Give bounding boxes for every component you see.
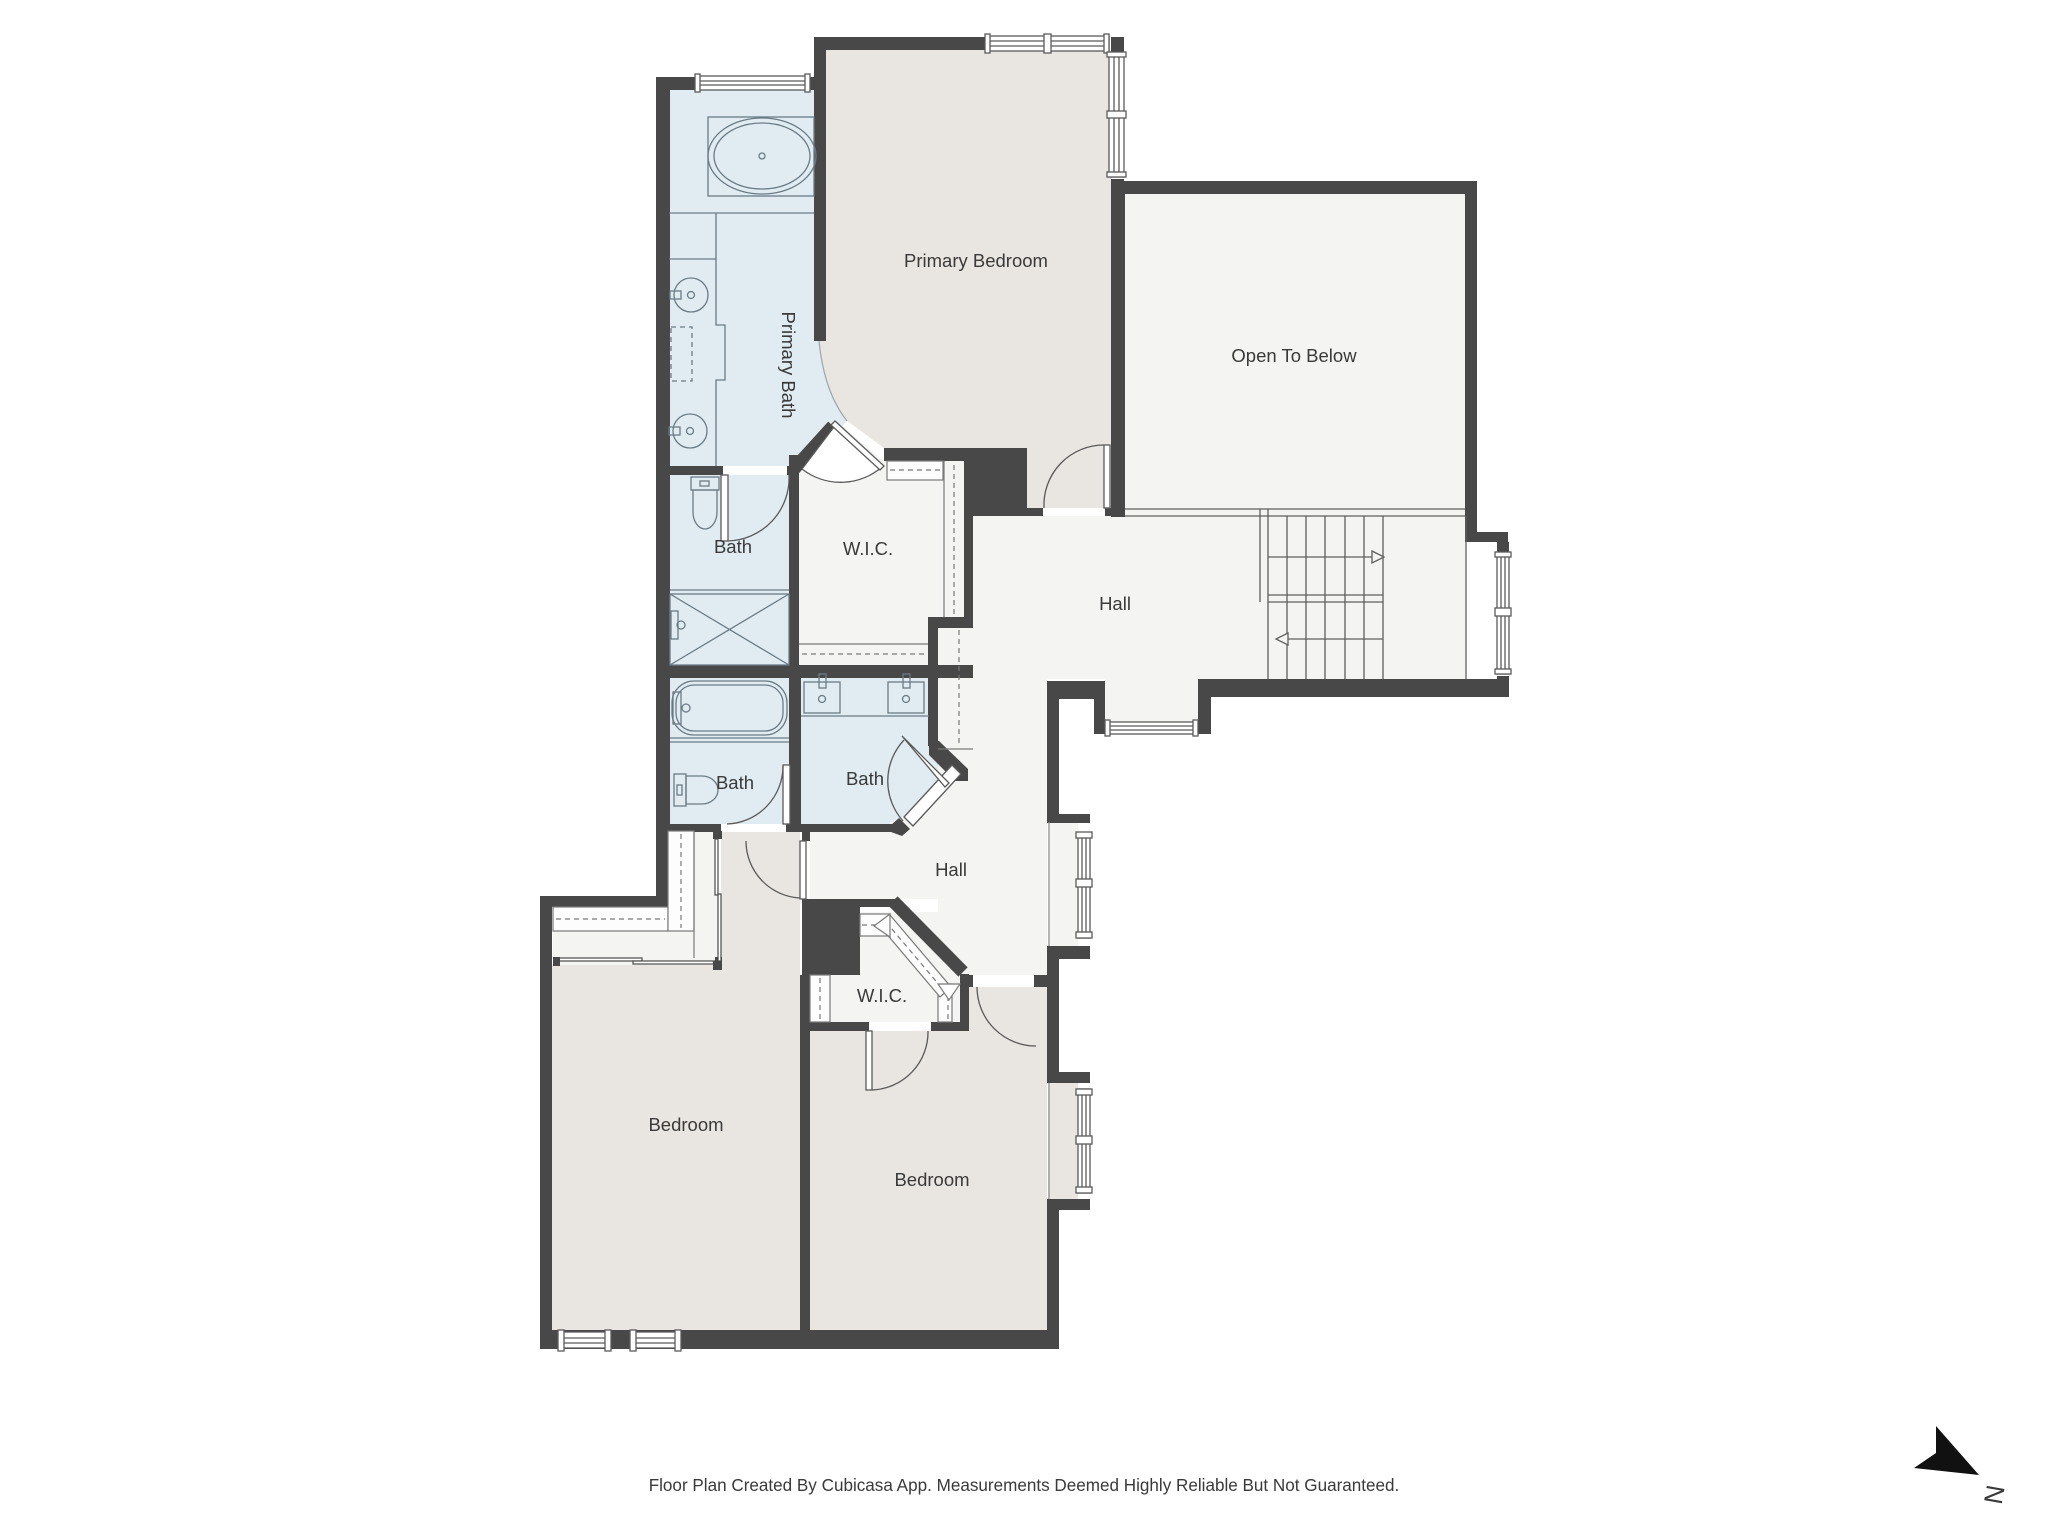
svg-text:Bath: Bath (846, 768, 884, 789)
svg-text:Bedroom: Bedroom (648, 1114, 723, 1135)
svg-text:Hall: Hall (1099, 593, 1131, 614)
svg-text:Primary Bath: Primary Bath (778, 312, 799, 419)
svg-text:Open To Below: Open To Below (1231, 345, 1357, 366)
svg-text:W.I.C.: W.I.C. (857, 985, 907, 1006)
svg-text:Floor Plan Created By Cubicasa: Floor Plan Created By Cubicasa App. Meas… (649, 1476, 1400, 1495)
svg-text:W.I.C.: W.I.C. (843, 538, 893, 559)
svg-text:Bath: Bath (714, 536, 752, 557)
svg-text:Bedroom: Bedroom (894, 1169, 969, 1190)
svg-text:Hall: Hall (935, 859, 967, 880)
svg-text:Bath: Bath (716, 772, 754, 793)
svg-text:Primary Bedroom: Primary Bedroom (904, 250, 1048, 271)
